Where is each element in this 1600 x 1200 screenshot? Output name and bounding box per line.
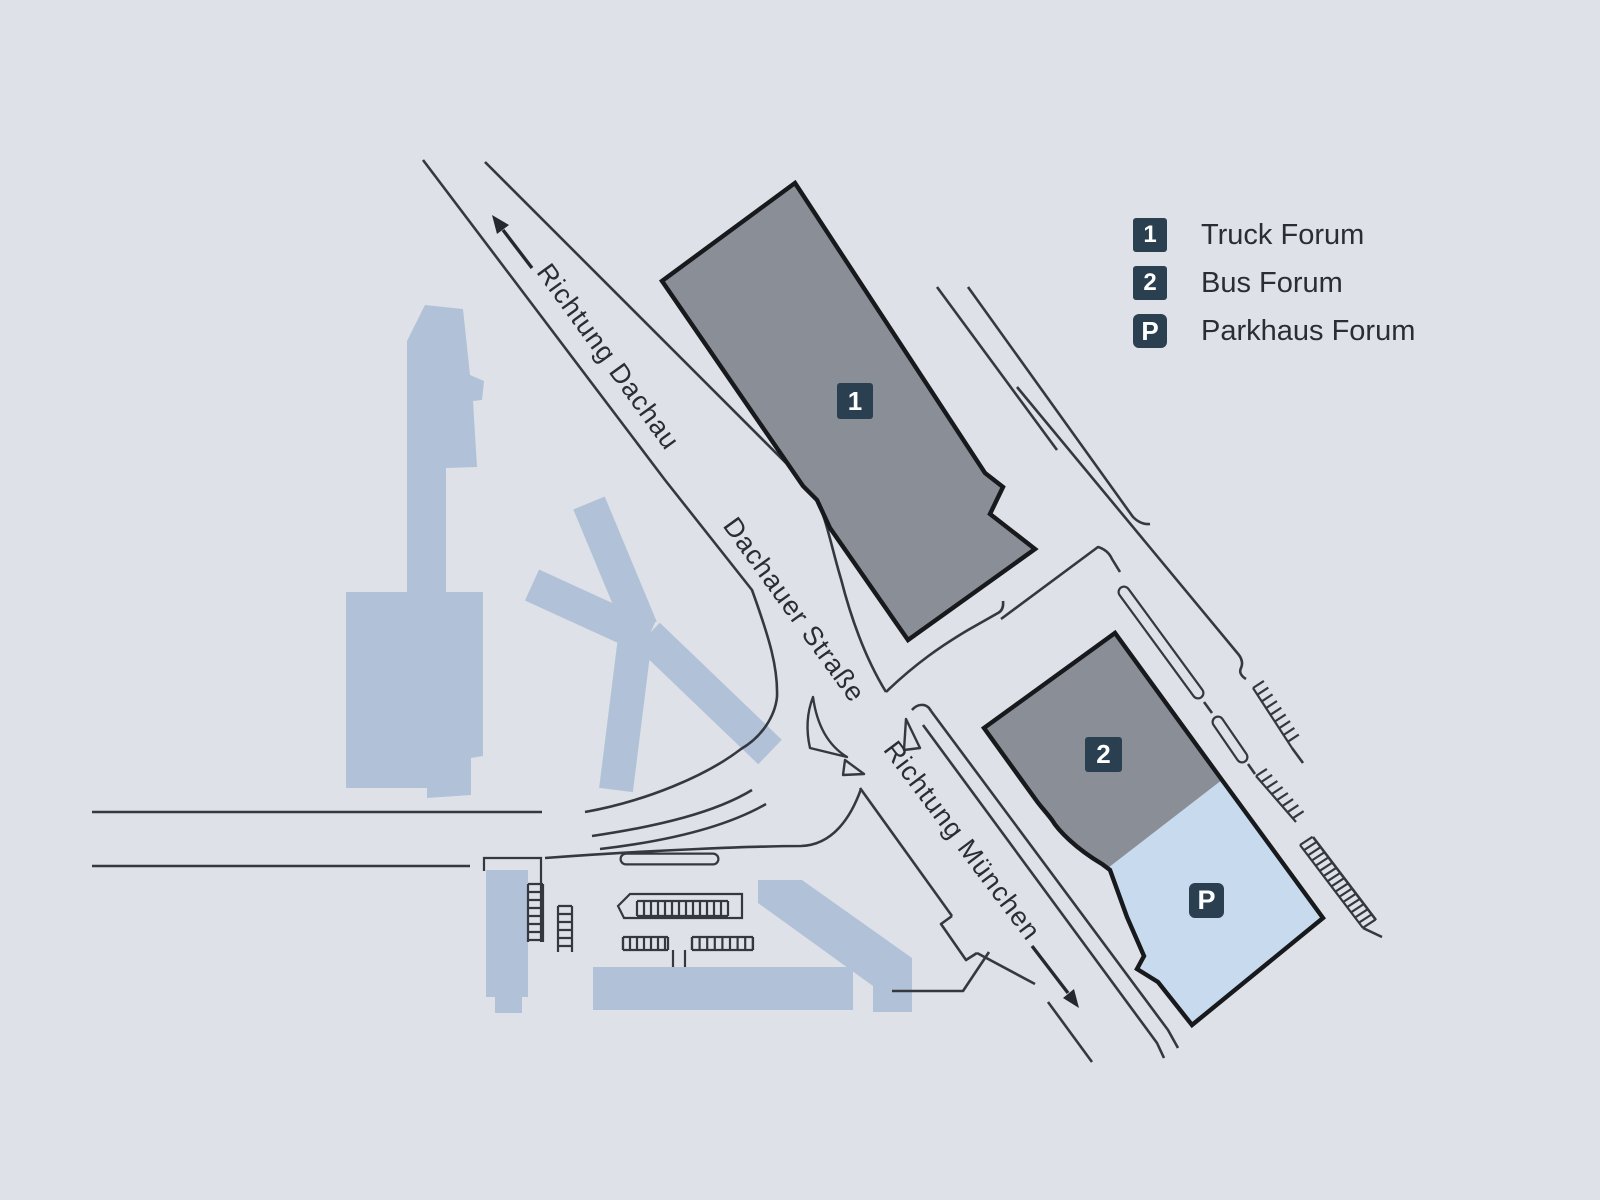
- marker-truck-forum: 1: [837, 383, 873, 419]
- road-median-hook: [912, 705, 931, 711]
- small-block-silhouette: [486, 870, 528, 1013]
- parking-ticks-row-d: [623, 937, 665, 950]
- marker-parkhaus: P: [1189, 883, 1224, 918]
- island-small-1: [843, 760, 864, 775]
- corridor-stub-3: [1292, 748, 1303, 763]
- parking-ticks-row-e: [692, 937, 753, 950]
- legend-label-truck-forum: Truck Forum: [1201, 219, 1364, 252]
- comb-ticks-1: [1253, 681, 1299, 742]
- road-branch-guide-1: [592, 790, 752, 836]
- street-label-richtung-dachau: Richtung Dachau: [531, 258, 686, 455]
- hall-silhouette: [346, 592, 483, 798]
- bus-bay-outline: [941, 916, 977, 960]
- road-outer-edge: [1017, 387, 1246, 679]
- map-canvas: Richtung Dachau Dachauer Straße Richtung…: [0, 0, 1600, 1200]
- island-large: [807, 697, 847, 757]
- legend-item-parkhaus-forum: P Parkhaus Forum: [1133, 314, 1415, 348]
- tower-silhouette: [407, 305, 484, 592]
- corridor-stub-2: [1248, 764, 1255, 774]
- strip-silhouette: [593, 967, 853, 1010]
- parking-rails: [528, 884, 753, 967]
- comb-rail-1: [1253, 688, 1292, 748]
- arrow-down-right-icon: [1032, 946, 1079, 1008]
- legend-label-bus-forum: Bus Forum: [1201, 267, 1343, 300]
- parking-rail-long: [1313, 837, 1376, 920]
- marker-bus-forum: 2: [1085, 737, 1122, 772]
- legend-item-truck-forum: 1 Truck Forum: [1133, 218, 1415, 252]
- road-branch-guide-2: [600, 804, 766, 849]
- corridor-stub-1: [1204, 702, 1212, 713]
- legend-badge-1: 1: [1133, 218, 1167, 252]
- site-map: Richtung Dachau Dachauer Straße Richtung…: [0, 0, 1600, 1200]
- legend-item-bus-forum: 2 Bus Forum: [1133, 266, 1415, 300]
- road-muenchen-west-edge-3: [1048, 1002, 1092, 1062]
- legend-badge-2: 2: [1133, 266, 1167, 300]
- parking-ticks-row-b: [558, 906, 572, 946]
- parking-ticks-row-c: [637, 901, 728, 916]
- corridor-stub-4: [1363, 928, 1382, 937]
- legend: 1 Truck Forum 2 Bus Forum P Parkhaus For…: [1133, 218, 1415, 362]
- road-branch-lower-edge: [545, 789, 861, 858]
- legend-label-parkhaus-forum: Parkhaus Forum: [1201, 315, 1415, 348]
- legend-badge-p: P: [1133, 314, 1167, 348]
- comb-ticks-2: [1256, 769, 1304, 818]
